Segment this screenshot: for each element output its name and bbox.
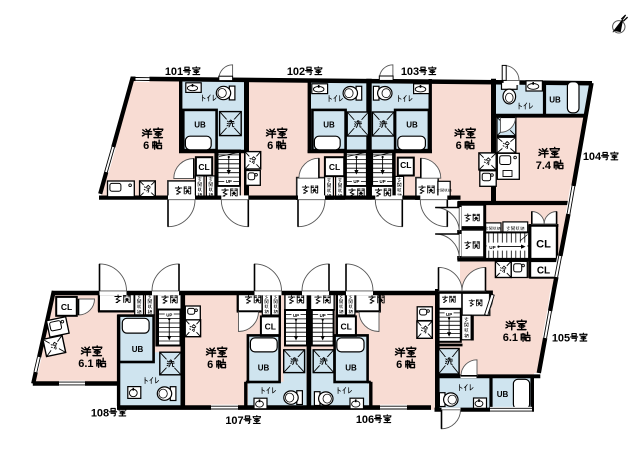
svg-text:107: 107 — [225, 415, 243, 427]
svg-text:6.1: 6.1 — [503, 332, 518, 344]
svg-text:105: 105 — [552, 333, 570, 345]
svg-text:UB: UB — [323, 121, 335, 130]
svg-text:6: 6 — [143, 140, 149, 152]
svg-text:6: 6 — [456, 140, 462, 152]
svg-text:UB: UB — [194, 121, 206, 130]
svg-text:6: 6 — [207, 359, 213, 371]
svg-text:UP: UP — [226, 179, 232, 184]
svg-text:102: 102 — [287, 66, 305, 78]
svg-text:CL: CL — [265, 322, 276, 332]
svg-text:6.1: 6.1 — [78, 358, 93, 370]
svg-text:101: 101 — [165, 66, 183, 78]
svg-text:106: 106 — [356, 414, 374, 426]
svg-text:UB: UB — [549, 96, 561, 105]
svg-text:UP: UP — [166, 313, 172, 318]
svg-text:UP: UP — [293, 313, 299, 318]
svg-text:CL: CL — [400, 160, 411, 170]
svg-text:UB: UB — [345, 364, 357, 373]
svg-text:UP: UP — [446, 312, 452, 317]
svg-text:CL: CL — [537, 265, 550, 276]
svg-text:CL: CL — [329, 162, 340, 172]
svg-text:CL: CL — [61, 302, 72, 312]
svg-text:CL: CL — [536, 238, 551, 250]
svg-text:6: 6 — [396, 359, 402, 371]
svg-text:UB: UB — [406, 121, 418, 130]
svg-text:103: 103 — [401, 66, 419, 78]
svg-text:UB: UB — [258, 364, 270, 373]
svg-text:7.4: 7.4 — [536, 160, 552, 172]
svg-text:UB: UB — [132, 345, 144, 354]
svg-text:UP: UP — [489, 245, 495, 250]
svg-text:6: 6 — [267, 140, 273, 152]
svg-text:108: 108 — [91, 407, 109, 419]
svg-text:UP: UP — [353, 179, 359, 184]
svg-text:UP: UP — [380, 179, 386, 184]
svg-text:UB: UB — [497, 390, 509, 399]
svg-text:104: 104 — [583, 151, 602, 163]
svg-text:UP: UP — [320, 313, 326, 318]
svg-text:CL: CL — [198, 162, 209, 172]
svg-text:CL: CL — [341, 322, 352, 332]
